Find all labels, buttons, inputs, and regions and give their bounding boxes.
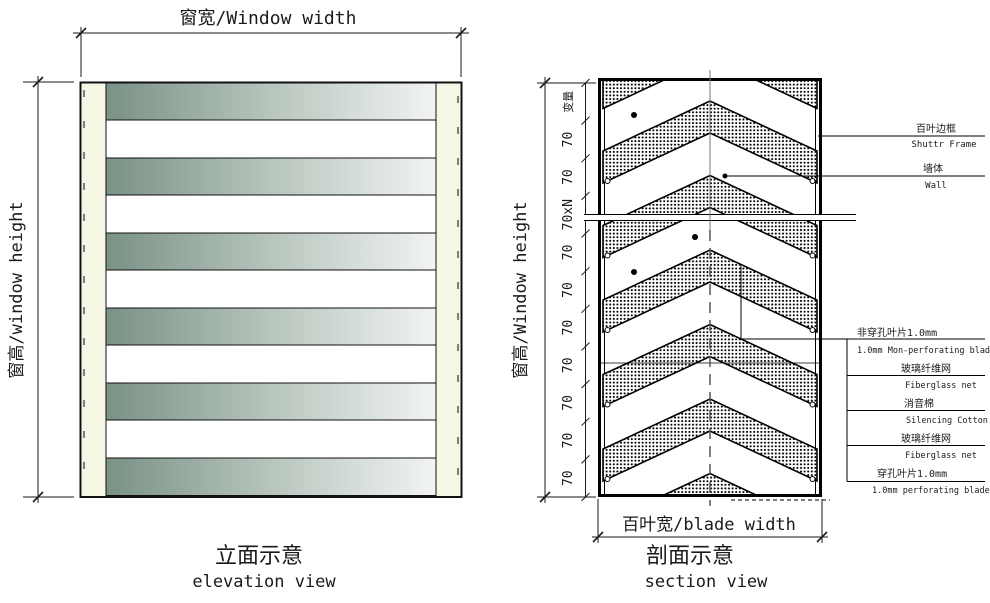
layer-label-cn: 穿孔叶片1.0mm — [877, 467, 947, 480]
slat — [106, 308, 436, 345]
elevation-caption-cn: 立面示意 — [215, 544, 303, 569]
louver-window-drawing: 窗宽/Window width 窗高/window height 立面示 — [0, 0, 990, 599]
spacing-label: 变量 — [561, 91, 575, 113]
spacing-label: 70 — [561, 357, 576, 373]
layer-label-en: Fiberglass net — [905, 451, 977, 461]
section-caption-en: section view — [645, 572, 769, 592]
section-view: 窗高/Window height 变量 70 70 70xN 70 70 70 — [511, 27, 856, 593]
callout-frame-en: Shuttr Frame — [911, 140, 976, 150]
section-height-label: 窗高/Window height — [511, 201, 531, 378]
layer-label-cn: 玻璃纤维网 — [901, 362, 951, 375]
spacing-label: 70 — [561, 245, 576, 261]
spacing-label: 70 — [561, 395, 576, 411]
spacing-label: 70 — [561, 320, 576, 336]
elevation-jamb-left — [82, 84, 106, 496]
slat — [106, 383, 436, 420]
slat — [106, 233, 436, 270]
callout-frame-cn: 百叶边框 — [916, 122, 956, 135]
elevation-width-dimension — [73, 27, 469, 77]
layer-label-en: Silencing Cotton — [906, 416, 988, 426]
layer-label-cn: 非穿孔叶片1.0mm — [857, 326, 937, 339]
window-height-label: 窗高/window height — [7, 201, 27, 378]
spacing-label: 70xN — [561, 199, 576, 230]
slat — [106, 158, 436, 195]
layer-label-en: 1.0mm Mon-perforating blade — [857, 346, 990, 356]
layer-label-cn: 玻璃纤维网 — [901, 432, 951, 445]
section-tick-chain — [582, 79, 590, 501]
spacing-label: 70 — [561, 433, 576, 449]
spacing-label: 70 — [561, 132, 576, 148]
drawing-svg: 窗宽/Window width 窗高/window height 立面示 — [0, 0, 990, 599]
blade-width-label: 百叶宽/blade width — [622, 515, 796, 535]
layer-label-cn: 消音棉 — [904, 397, 934, 410]
spacing-label: 70 — [561, 282, 576, 298]
spacing-label: 70 — [561, 169, 576, 185]
break-lines — [584, 215, 856, 221]
section-caption-cn: 剖面示意 — [646, 544, 734, 569]
spacing-label: 70 — [561, 470, 576, 486]
slat — [106, 83, 436, 120]
layer-label-en: 1.0mm perforating blade — [872, 486, 990, 496]
elevation-jamb-right — [436, 84, 460, 496]
window-width-label: 窗宽/Window width — [180, 8, 357, 29]
elevation-caption-en: elevation view — [192, 572, 336, 592]
callout-wall-en: Wall — [925, 181, 947, 191]
elevation-frame — [81, 83, 462, 498]
slat — [106, 458, 436, 496]
section-spacing-labels: 变量 70 70 70xN 70 70 70 70 70 70 70 — [561, 91, 576, 486]
elevation-view: 窗宽/Window width 窗高/window height 立面示 — [7, 8, 469, 592]
layer-label-en: Fiberglass net — [905, 381, 977, 391]
callout-wall-cn: 墙体 — [923, 162, 943, 175]
elevation-height-dimension — [23, 76, 74, 503]
